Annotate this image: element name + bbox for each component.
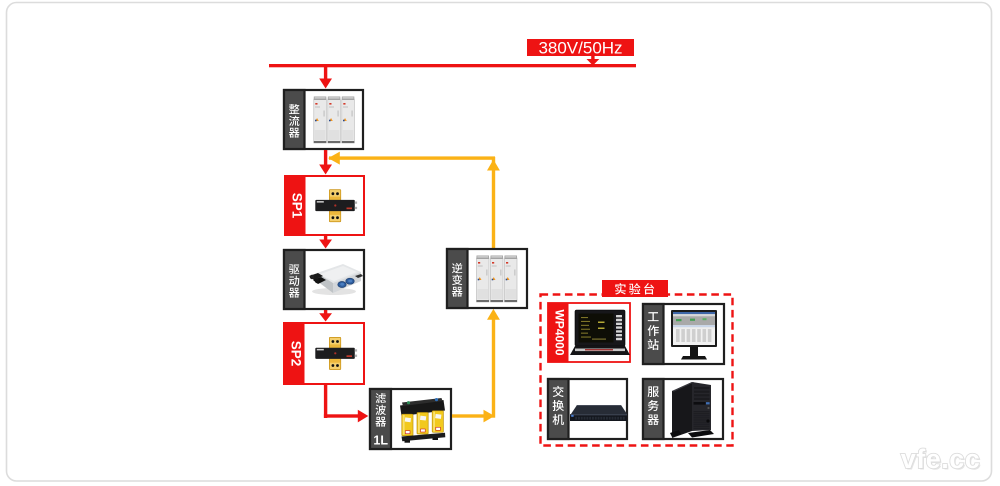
svg-text:WP4000: WP4000 [552,309,566,355]
svg-text:SP2: SP2 [288,341,303,367]
svg-text:1L: 1L [373,434,388,448]
svg-text:vfe.cc: vfe.cc [901,444,981,474]
svg-text:SP1: SP1 [289,193,304,219]
svg-text:380V/50Hz: 380V/50Hz [538,39,622,58]
